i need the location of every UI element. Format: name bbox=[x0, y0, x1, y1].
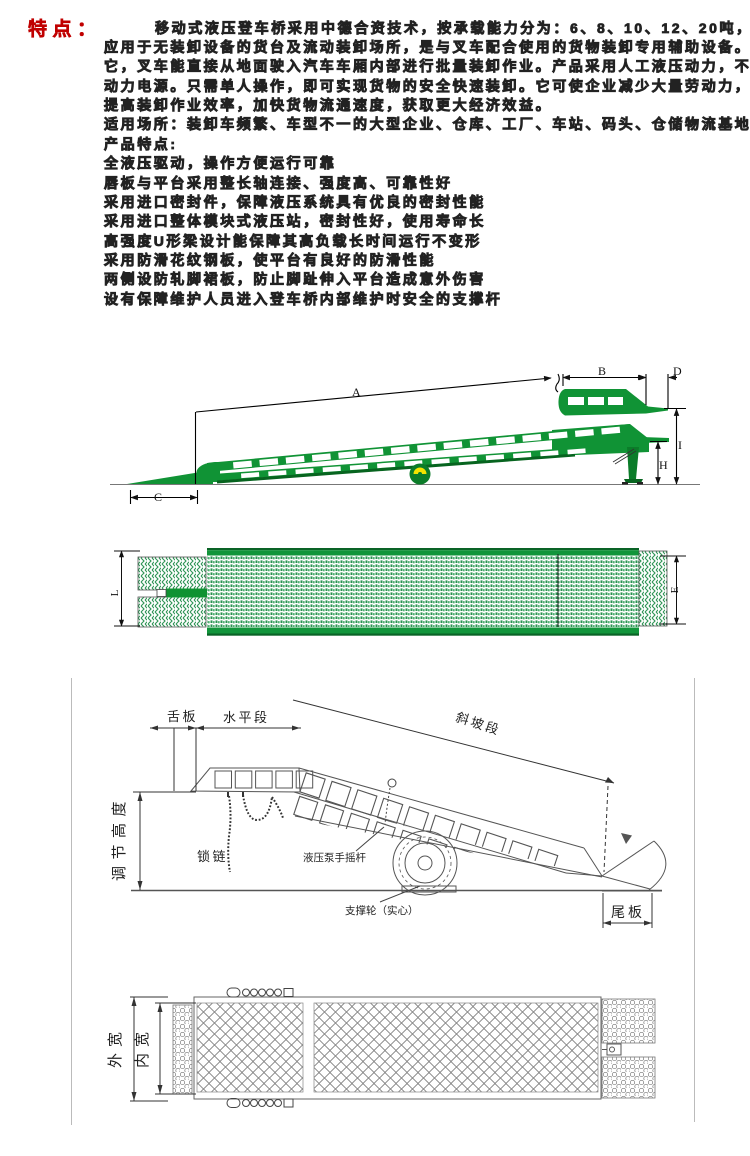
svg-text:液压泵手摇杆: 液压泵手摇杆 bbox=[303, 851, 366, 864]
svg-text:B: B bbox=[598, 364, 606, 378]
svg-text:L: L bbox=[109, 589, 121, 596]
svg-text:C: C bbox=[154, 490, 162, 504]
svg-text:舌板: 舌板 bbox=[167, 709, 198, 724]
svg-text:支撑轮（实心）: 支撑轮（实心） bbox=[345, 904, 419, 917]
svg-text:H: H bbox=[659, 458, 668, 472]
svg-text:内宽: 内宽 bbox=[134, 1026, 151, 1068]
svg-text:I: I bbox=[678, 438, 682, 452]
svg-text:E: E bbox=[669, 586, 681, 593]
svg-text:水平段: 水平段 bbox=[223, 710, 270, 725]
svg-text:A: A bbox=[352, 385, 361, 399]
svg-text:尾板: 尾板 bbox=[611, 904, 645, 920]
svg-text:锁链: 锁链 bbox=[197, 849, 228, 864]
svg-text:D: D bbox=[673, 364, 682, 378]
svg-text:斜坡段: 斜坡段 bbox=[454, 709, 503, 738]
svg-text:调节高度: 调节高度 bbox=[111, 795, 128, 881]
svg-text:外宽: 外宽 bbox=[107, 1026, 124, 1068]
